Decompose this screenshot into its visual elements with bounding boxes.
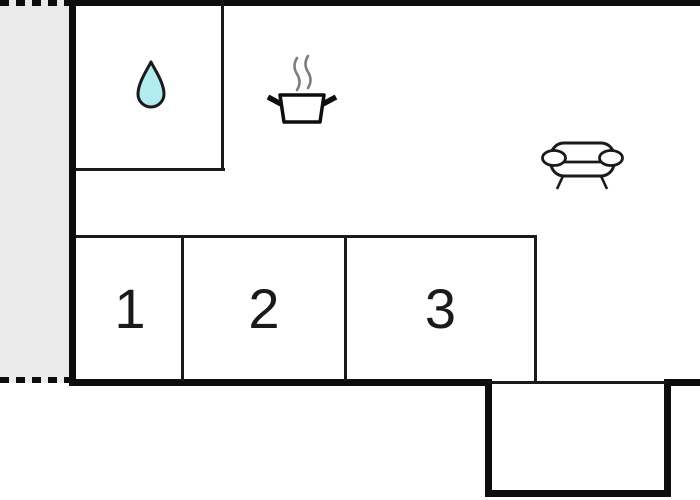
exterior-wall-top	[69, 0, 700, 6]
bathroom-wall-bottom	[76, 168, 225, 171]
bedroom-2-label: 2	[248, 281, 279, 337]
bedroom-3-label: 3	[425, 281, 456, 337]
room-bedroom-3: 3	[347, 238, 534, 379]
bathroom-wall-right	[221, 0, 224, 171]
exterior-wall-left	[69, 0, 76, 386]
bedroom-1-label: 1	[114, 281, 145, 337]
room-bedroom-2: 2	[184, 238, 344, 379]
exterior-wall-bottom-left	[69, 379, 492, 386]
terrace-dashed-border-top	[0, 0, 69, 6]
terrace-area	[0, 0, 69, 383]
room-bedroom-1: 1	[79, 238, 181, 379]
cooking-pot-icon	[266, 52, 338, 126]
room-entrance	[485, 381, 671, 497]
terrace-dashed-border-bottom	[0, 377, 69, 383]
floor-plan: 1 2 3	[0, 0, 700, 500]
water-drop-icon	[133, 58, 169, 115]
sofa-icon	[534, 136, 628, 194]
bedroom-3-wall-right	[534, 235, 537, 381]
